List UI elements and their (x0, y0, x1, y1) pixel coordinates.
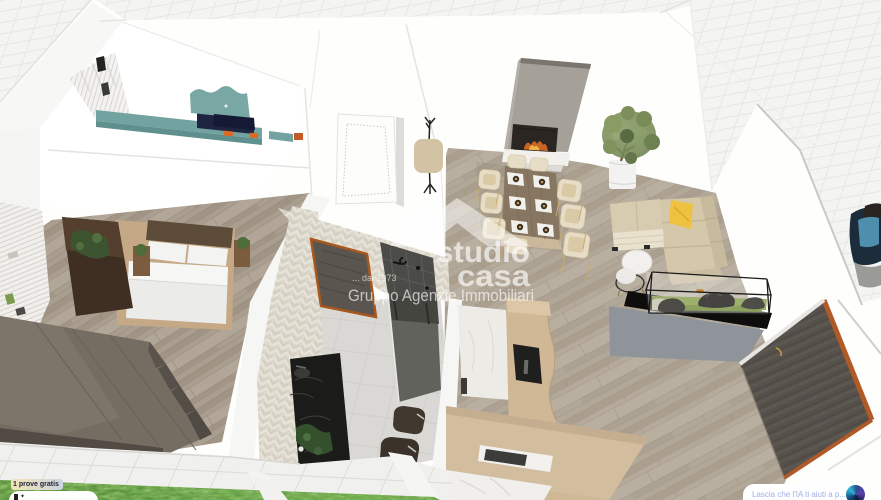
svg-text:... dal 1973: ... dal 1973 (352, 273, 397, 283)
svg-text:Gruppo Agenzie Immobiliari: Gruppo Agenzie Immobiliari (348, 286, 534, 305)
